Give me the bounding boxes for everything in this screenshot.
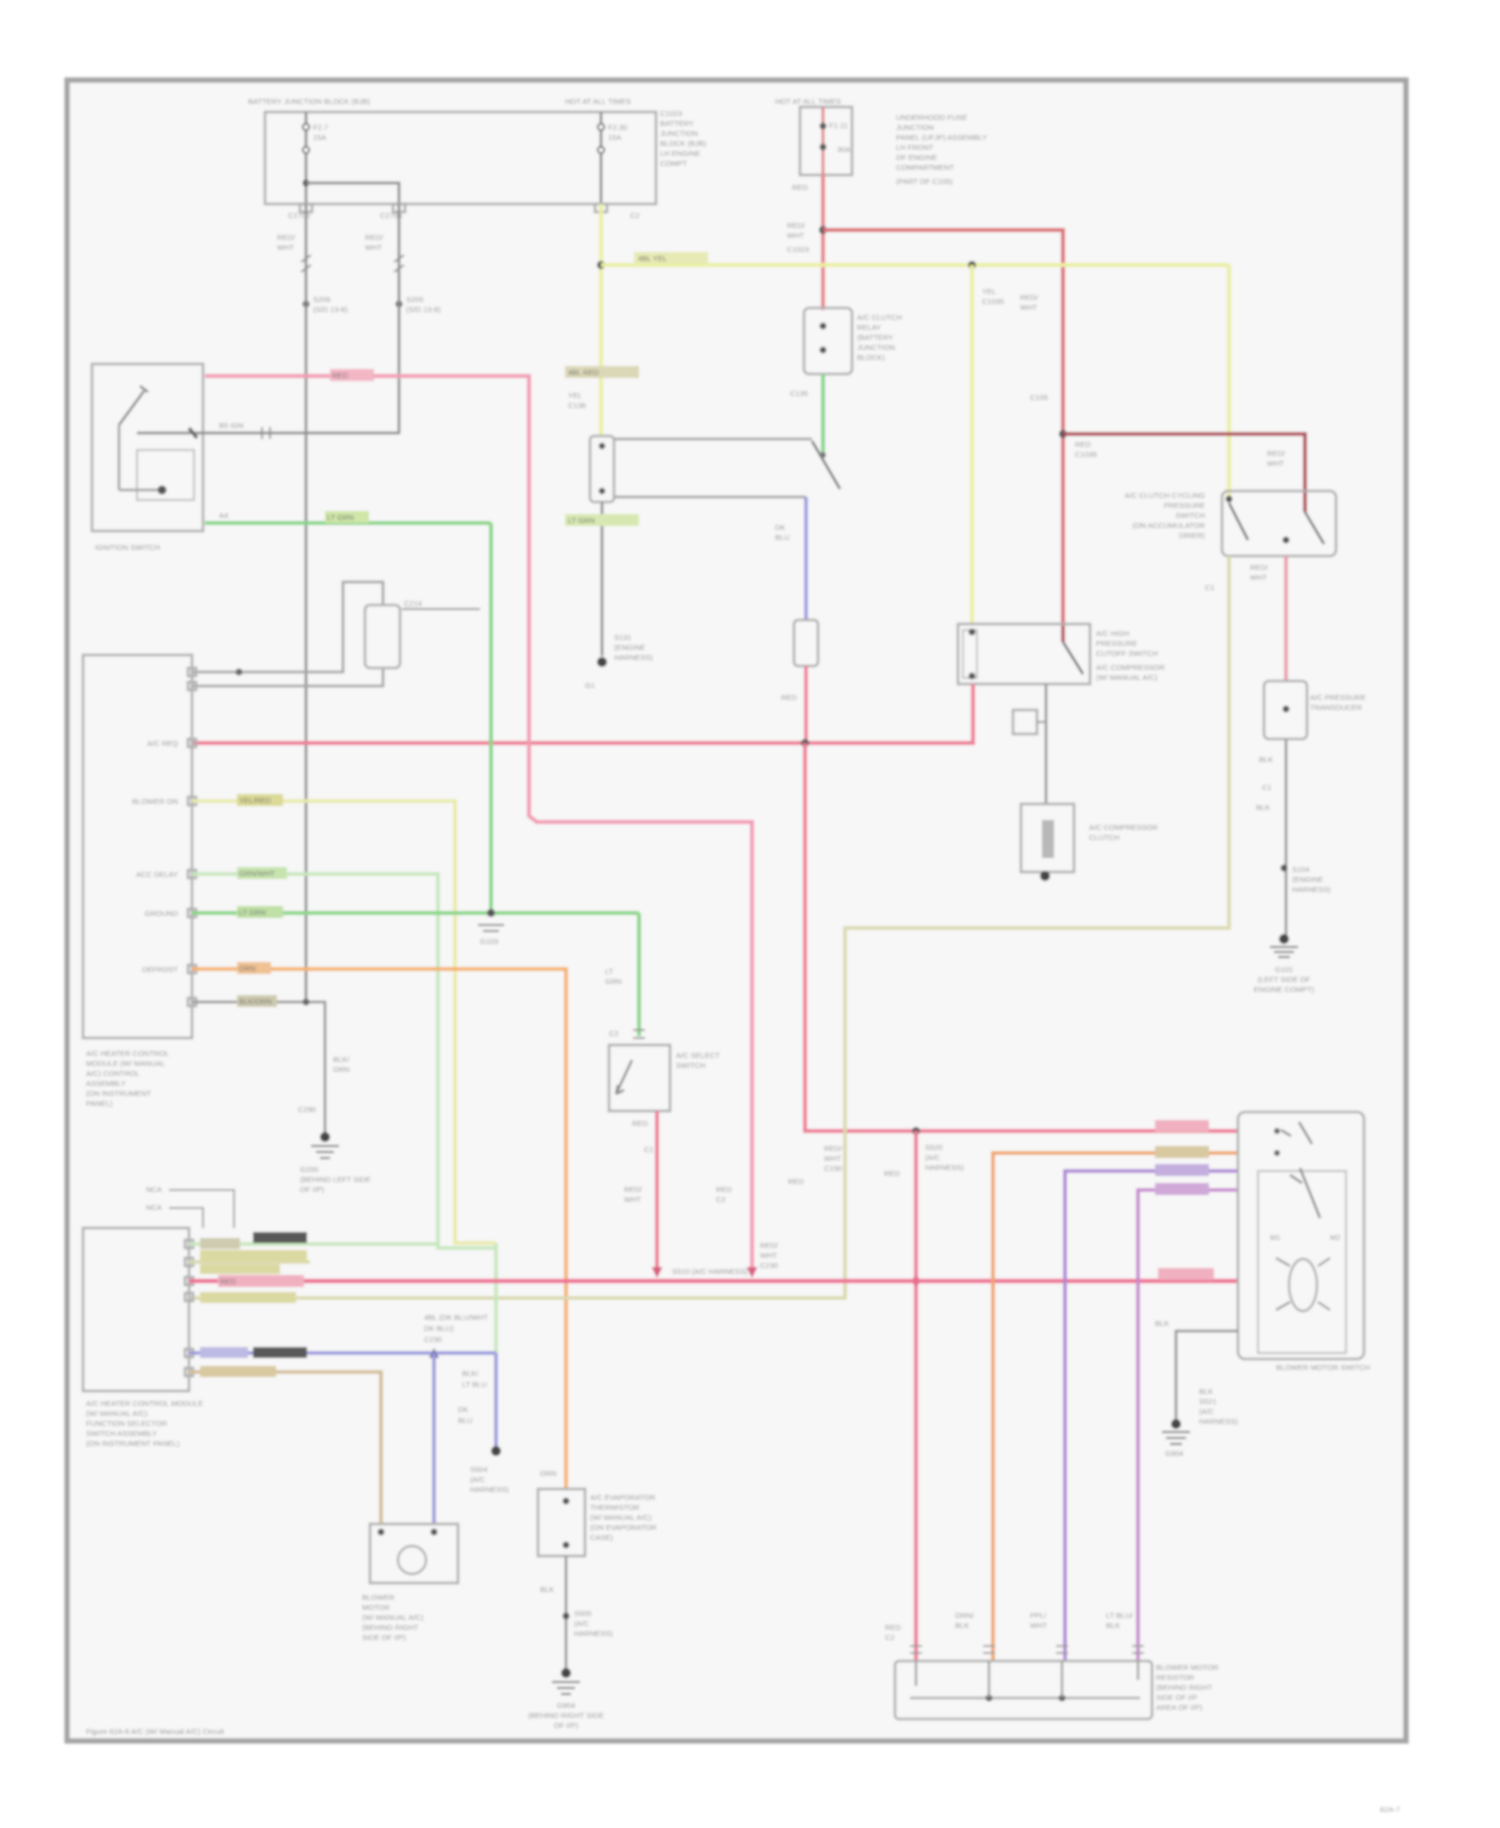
svg-text:DK BLU): DK BLU) [424,1324,454,1333]
svg-text:A/C) CONTROL: A/C) CONTROL [86,1069,140,1078]
svg-text:(A/C: (A/C [574,1619,590,1628]
svg-text:RED/: RED/ [787,221,806,230]
svg-text:M2: M2 [1330,1233,1340,1242]
svg-text:(A/C: (A/C [925,1153,941,1162]
svg-text:HARNESS): HARNESS) [1292,885,1331,894]
svg-text:RESISTOR: RESISTOR [1156,1673,1195,1682]
svg-text:WHT: WHT [1267,459,1284,468]
svg-text:(W/ MANUAL A/C): (W/ MANUAL A/C) [1096,673,1158,682]
svg-text:RED: RED [332,371,348,380]
svg-text:A/C HEATER CONTROL: A/C HEATER CONTROL [86,1049,169,1058]
svg-text:WHT: WHT [1030,1621,1047,1630]
svg-text:RED/: RED/ [365,233,384,242]
svg-text:F2.7: F2.7 [313,123,328,132]
svg-text:JUNCTION: JUNCTION [857,343,895,352]
svg-text:ACC DELAY: ACC DELAY [136,870,178,879]
svg-text:LH FRONT: LH FRONT [896,143,934,152]
svg-text:IGNITION SWITCH: IGNITION SWITCH [95,543,160,552]
svg-text:GROUND: GROUND [145,909,179,918]
svg-text:HARNESS): HARNESS) [470,1485,509,1494]
svg-text:RED/: RED/ [1020,293,1039,302]
svg-text:(ON INSTRUMENT: (ON INSTRUMENT [86,1089,151,1098]
svg-text:A/C EVAPORATOR: A/C EVAPORATOR [590,1493,656,1502]
svg-text:BLK: BLK [540,1585,554,1594]
svg-text:BLK: BLK [1256,803,1270,812]
svg-text:BLK/ORN: BLK/ORN [239,997,272,1006]
svg-text:(ON ACCUMULATOR: (ON ACCUMULATOR [1132,521,1205,530]
svg-text:G904: G904 [557,1701,575,1710]
svg-text:C230: C230 [760,1261,778,1270]
svg-text:G904: G904 [1165,1449,1183,1458]
svg-text:C2: C2 [885,1633,895,1642]
svg-text:UNDERHOOD FUSE: UNDERHOOD FUSE [896,113,967,122]
svg-text:JUNCTION: JUNCTION [896,123,934,132]
svg-text:A/C COMPRESSOR: A/C COMPRESSOR [1089,823,1158,832]
svg-text:(ENGINE: (ENGINE [614,643,645,652]
svg-text:15A: 15A [608,133,621,142]
svg-text:YEL: YEL [982,287,996,296]
svg-text:A/C HIGH: A/C HIGH [1096,629,1129,638]
svg-text:MODULE (W/ MANUAL: MODULE (W/ MANUAL [86,1059,165,1068]
svg-text:WHT: WHT [365,243,382,252]
svg-text:LT GRN: LT GRN [239,908,266,917]
svg-text:C230: C230 [824,1164,842,1173]
svg-text:CUTOFF SWITCH: CUTOFF SWITCH [1096,649,1158,658]
svg-text:AREA OF I/P): AREA OF I/P) [1156,1703,1203,1712]
svg-text:62A-7: 62A-7 [1380,1805,1400,1814]
svg-text:GRN: GRN [605,977,622,986]
svg-text:HARNESS): HARNESS) [614,653,653,662]
svg-text:RELAY: RELAY [857,323,881,332]
svg-text:BLOCK (BJB): BLOCK (BJB) [660,139,707,148]
svg-text:S504: S504 [470,1465,488,1474]
svg-text:(A/C: (A/C [470,1475,486,1484]
svg-text:SWITCH: SWITCH [1175,511,1205,520]
svg-text:WHT: WHT [760,1251,777,1260]
svg-text:C135: C135 [790,389,808,398]
svg-text:F2.30: F2.30 [608,123,627,132]
svg-text:4BL (DK BLU/WHT: 4BL (DK BLU/WHT [424,1313,488,1322]
svg-text:BATTERY: BATTERY [660,119,694,128]
svg-text:RED: RED [781,693,797,702]
svg-text:BLK: BLK [1259,755,1273,764]
svg-text:RED: RED [788,1177,804,1186]
svg-text:S206: S206 [313,295,331,304]
svg-text:(BEHIND LEFT SIDE: (BEHIND LEFT SIDE [300,1175,371,1184]
svg-text:B5 IGN: B5 IGN [219,421,244,430]
svg-text:HARNESS): HARNESS) [925,1163,964,1172]
svg-text:LH ENGINE: LH ENGINE [660,149,700,158]
svg-text:RED: RED [632,1119,648,1128]
svg-text:RED: RED [885,1623,901,1632]
svg-text:HOT AT ALL TIMES: HOT AT ALL TIMES [565,97,631,106]
svg-text:BLU: BLU [775,533,790,542]
svg-text:C1: C1 [1205,583,1215,592]
svg-text:C290: C290 [298,1105,316,1114]
svg-text:BLOWER MOTOR: BLOWER MOTOR [1156,1663,1219,1672]
svg-text:BLOCK): BLOCK) [857,353,885,362]
svg-text:(W/ MANUAL A/C): (W/ MANUAL A/C) [362,1613,424,1622]
svg-text:C136: C136 [568,401,586,410]
svg-text:WHT: WHT [624,1195,641,1204]
svg-text:C214: C214 [404,599,422,608]
svg-text:(S/D 13-8): (S/D 13-8) [406,305,441,314]
svg-text:C1: C1 [644,1145,654,1154]
svg-text:RED/: RED/ [760,1241,779,1250]
svg-text:ORN: ORN [540,1469,557,1478]
svg-text:(BEHIND RIGHT: (BEHIND RIGHT [1156,1683,1213,1692]
svg-text:S510 (A/C HARNESS): S510 (A/C HARNESS) [672,1267,748,1276]
svg-text:G1: G1 [585,681,595,690]
svg-text:G101: G101 [1275,965,1293,974]
svg-text:F1.11: F1.11 [829,121,848,130]
svg-text:C2: C2 [716,1195,726,1204]
svg-text:ORN/: ORN/ [955,1611,975,1620]
svg-text:MOTOR: MOTOR [362,1603,390,1612]
svg-text:DRIER): DRIER) [1179,531,1205,540]
svg-text:(ENGINE: (ENGINE [1292,875,1323,884]
svg-text:A/C HEATER CONTROL MODULE: A/C HEATER CONTROL MODULE [86,1399,203,1408]
svg-text:NCA: NCA [146,1203,162,1212]
svg-text:A/C REQ: A/C REQ [147,739,178,748]
svg-text:JUNCTION: JUNCTION [660,129,698,138]
svg-text:(ON EVAPORATOR: (ON EVAPORATOR [590,1523,657,1532]
svg-text:BLK: BLK [1106,1621,1120,1630]
svg-text:C1023: C1023 [787,245,809,254]
svg-text:S505: S505 [574,1609,592,1618]
svg-text:(W/ MANUAL A/C): (W/ MANUAL A/C) [86,1409,148,1418]
svg-text:LT BLU: LT BLU [462,1380,487,1389]
svg-text:S520: S520 [925,1143,943,1152]
svg-text:C1035: C1035 [1075,450,1097,459]
svg-text:C1: C1 [1262,783,1272,792]
svg-text:LT BLU/: LT BLU/ [1106,1611,1134,1620]
svg-text:CLUTCH: CLUTCH [1089,833,1119,842]
svg-text:LT: LT [605,967,614,976]
svg-text:RED/: RED/ [824,1144,843,1153]
svg-text:WHT: WHT [787,231,804,240]
svg-text:A/C SELECT: A/C SELECT [676,1051,720,1060]
svg-text:PRESSURE: PRESSURE [1096,639,1137,648]
svg-text:BLK/: BLK/ [462,1369,479,1378]
svg-text:PPL/: PPL/ [1030,1611,1047,1620]
svg-text:RED/: RED/ [624,1185,643,1194]
svg-text:BLOWER MOTOR SWITCH: BLOWER MOTOR SWITCH [1276,1363,1370,1372]
svg-text:TRANSDUCER: TRANSDUCER [1310,703,1363,712]
svg-text:ASSEMBLY: ASSEMBLY [86,1079,126,1088]
svg-text:(S/D 13-8): (S/D 13-8) [313,305,348,314]
svg-text:Figure 62A-6 A/C (W/ Manual A: Figure 62A-6 A/C (W/ Manual A/C) Circuit [86,1727,225,1736]
svg-text:(LEFT SIDE OF: (LEFT SIDE OF [1258,975,1311,984]
svg-text:RED/: RED/ [1267,449,1286,458]
svg-text:YEL: YEL [568,391,582,400]
svg-text:C105: C105 [1030,393,1048,402]
svg-text:(A/C: (A/C [1199,1407,1215,1416]
svg-text:SWITCH ASSEMBLY: SWITCH ASSEMBLY [86,1429,157,1438]
svg-text:C1035: C1035 [982,297,1004,306]
svg-text:PANEL): PANEL) [86,1099,113,1108]
svg-text:A/C CLUTCH: A/C CLUTCH [857,313,902,322]
svg-text:RED: RED [220,1277,236,1286]
svg-text:(W/ MANUAL A/C): (W/ MANUAL A/C) [590,1513,652,1522]
svg-text:S521: S521 [1199,1397,1217,1406]
svg-text:OF I/P): OF I/P) [554,1721,579,1730]
svg-text:COMPT: COMPT [660,159,688,168]
svg-text:RED: RED [716,1185,732,1194]
svg-text:DK: DK [458,1405,468,1414]
svg-text:M1: M1 [1270,1233,1280,1242]
svg-text:ENGINE COMPT): ENGINE COMPT) [1254,985,1315,994]
svg-text:(BEHIND RIGHT SIDE: (BEHIND RIGHT SIDE [528,1711,604,1720]
svg-text:BLU: BLU [458,1416,473,1425]
svg-text:A/C COMPRESSOR: A/C COMPRESSOR [1096,663,1165,672]
svg-text:A/C CLUTCH CYCLING: A/C CLUTCH CYCLING [1125,491,1206,500]
svg-text:A/C PRESSURE: A/C PRESSURE [1310,693,1366,702]
svg-text:DK: DK [775,523,785,532]
svg-text:BLK: BLK [1155,1319,1169,1328]
svg-text:HOT AT ALL TIMES: HOT AT ALL TIMES [775,97,841,106]
svg-text:RED: RED [792,183,808,192]
svg-text:BLK/: BLK/ [333,1055,350,1064]
svg-text:FUNCTION SELECTOR: FUNCTION SELECTOR [86,1419,168,1428]
svg-text:SWITCH: SWITCH [676,1061,706,1070]
svg-text:DEFROST: DEFROST [142,965,178,974]
svg-text:PRESSURE: PRESSURE [1164,501,1205,510]
svg-text:BLOWER ON: BLOWER ON [132,797,178,806]
svg-text:WHT: WHT [277,243,294,252]
svg-text:S131: S131 [614,633,632,642]
svg-text:WHT: WHT [1020,303,1037,312]
svg-text:RED/: RED/ [277,233,296,242]
svg-text:OF ENGINE: OF ENGINE [896,153,937,162]
svg-text:RED: RED [884,1169,900,1178]
svg-text:(BATTERY: (BATTERY [857,333,893,342]
svg-text:NCA: NCA [146,1185,162,1194]
svg-text:A4: A4 [219,511,228,520]
svg-text:OF I/P): OF I/P) [300,1185,325,1194]
svg-text:BLK: BLK [955,1621,969,1630]
svg-text:4BL YEL: 4BL YEL [638,254,667,263]
svg-text:C2: C2 [630,211,640,220]
svg-text:THERMISTOR: THERMISTOR [590,1503,640,1512]
svg-text:SIDE OF I/P): SIDE OF I/P) [362,1633,406,1642]
svg-text:WHT: WHT [824,1154,841,1163]
svg-text:YEL/RED: YEL/RED [239,796,272,805]
svg-text:30A: 30A [837,145,850,154]
svg-text:HARNESS): HARNESS) [1199,1417,1238,1426]
svg-text:C2: C2 [609,1029,619,1038]
svg-text:GRN/WHT: GRN/WHT [239,869,275,878]
svg-text:RED: RED [1075,440,1091,449]
svg-text:WHT: WHT [1250,573,1267,582]
svg-text:ORN: ORN [239,964,256,973]
svg-text:COMPARTMENT: COMPARTMENT [896,163,954,172]
svg-text:PANEL (UFJP) ASSEMBLY: PANEL (UFJP) ASSEMBLY [896,133,987,142]
svg-text:CASE): CASE) [590,1533,613,1542]
svg-text:(PART OF C105): (PART OF C105) [896,177,953,186]
svg-text:(BEHIND RIGHT: (BEHIND RIGHT [362,1623,419,1632]
svg-text:G103: G103 [480,937,498,946]
svg-text:4BL RED: 4BL RED [568,368,600,377]
svg-text:BLK: BLK [1199,1387,1213,1396]
svg-text:S205: S205 [406,295,424,304]
svg-text:BATTERY JUNCTION BLOCK (BJB): BATTERY JUNCTION BLOCK (BJB) [248,97,371,106]
svg-text:SIDE OF I/P: SIDE OF I/P [1156,1693,1197,1702]
svg-text:ORN: ORN [333,1065,350,1074]
svg-text:G200: G200 [300,1165,318,1174]
svg-text:LT GRN: LT GRN [568,516,595,525]
svg-text:S104: S104 [1292,865,1310,874]
svg-text:C1023: C1023 [660,109,682,118]
svg-text:15A: 15A [313,133,326,142]
svg-text:(ON INSTRUMENT PANEL): (ON INSTRUMENT PANEL) [86,1439,180,1448]
svg-text:HARNESS): HARNESS) [574,1629,613,1638]
svg-text:LT GRN: LT GRN [327,513,354,522]
svg-text:BLOWER: BLOWER [362,1593,395,1602]
svg-text:RED/: RED/ [1250,563,1269,572]
svg-text:C230: C230 [424,1335,442,1344]
